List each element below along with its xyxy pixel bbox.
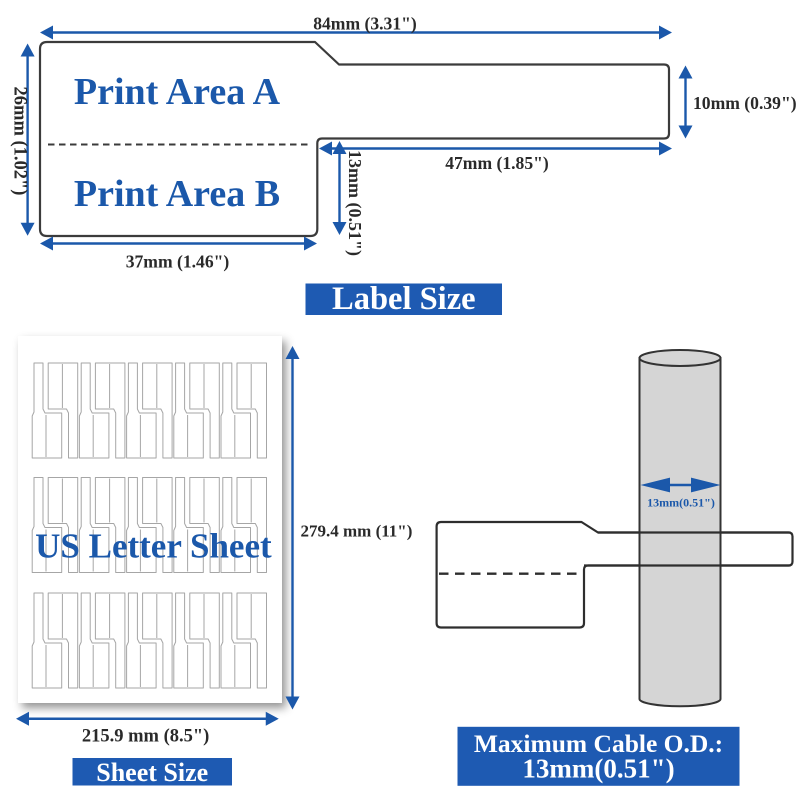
svg-text:84mm (3.31"): 84mm (3.31")	[313, 14, 417, 34]
svg-text:215.9 mm (8.5"): 215.9 mm (8.5")	[82, 727, 209, 747]
svg-text:13mm(0.51"): 13mm(0.51")	[647, 496, 715, 510]
svg-text:13mm (0.51"): 13mm (0.51")	[344, 150, 365, 256]
svg-text:37mm (1.46"): 37mm (1.46")	[126, 252, 230, 272]
svg-text:Print Area A: Print Area A	[74, 71, 281, 113]
svg-text:47mm (1.85"): 47mm (1.85")	[445, 153, 549, 173]
svg-text:Sheet Size: Sheet Size	[96, 758, 208, 787]
svg-text:13mm(0.51"): 13mm(0.51")	[522, 754, 674, 784]
svg-text:26mm (1.02"): 26mm (1.02")	[10, 87, 30, 196]
svg-text:Label Size: Label Size	[332, 281, 476, 317]
svg-text:Print Area B: Print Area B	[74, 173, 280, 215]
svg-text:10mm (0.39"): 10mm (0.39")	[693, 93, 797, 113]
svg-text:279.4 mm (11"): 279.4 mm (11")	[301, 522, 413, 541]
svg-text:US Letter Sheet: US Letter Sheet	[35, 527, 272, 566]
